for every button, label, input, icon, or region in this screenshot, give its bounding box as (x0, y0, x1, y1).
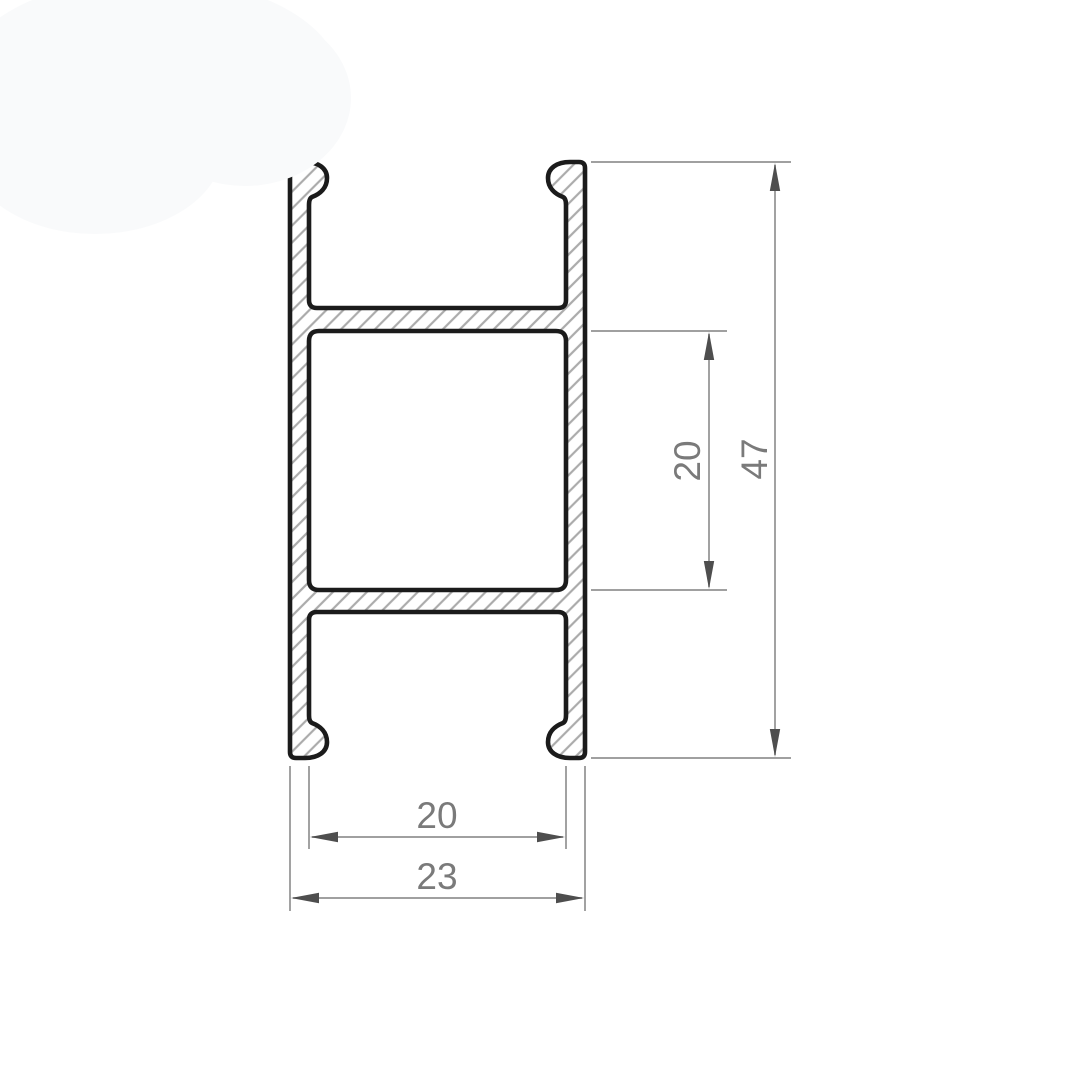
dimension-inner-height: 20 (591, 331, 727, 590)
arrowhead-right (537, 832, 565, 842)
arrowhead-right (556, 893, 584, 903)
dimension-inner-width: 20 (309, 766, 566, 849)
arrowhead-down (770, 729, 780, 757)
technical-drawing: 20 47 20 (0, 0, 1080, 1080)
drawing-canvas: 20 47 20 (0, 0, 1080, 1080)
arrowhead-down (704, 561, 714, 589)
dimension-value-inner-height: 20 (667, 440, 708, 481)
profile-outline (290, 162, 585, 758)
arrowhead-up (704, 332, 714, 360)
arrowhead-left (291, 893, 319, 903)
profile-section (290, 162, 585, 758)
dimension-value-inner-width: 20 (416, 795, 457, 836)
dimension-value-outer-height: 47 (734, 438, 775, 479)
dimension-value-outer-width: 23 (416, 856, 457, 897)
arrowhead-left (310, 832, 338, 842)
arrowhead-up (770, 163, 780, 191)
